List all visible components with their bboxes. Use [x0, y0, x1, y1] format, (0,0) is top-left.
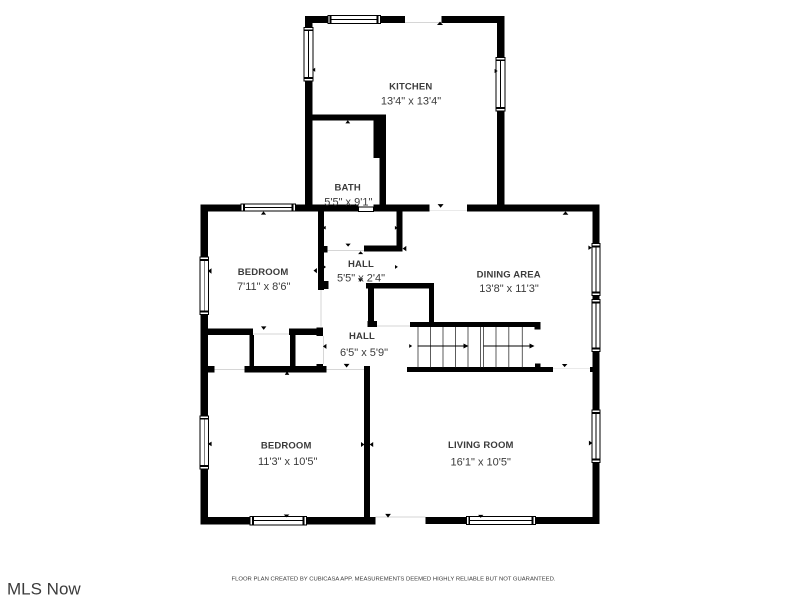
svg-text:13'8" x 11'3": 13'8" x 11'3": [479, 283, 539, 295]
svg-text:16'1" x 10'5": 16'1" x 10'5": [451, 457, 511, 469]
svg-text:BEDROOM: BEDROOM: [261, 440, 312, 451]
svg-text:11'3" x 10'5": 11'3" x 10'5": [258, 456, 318, 468]
svg-text:13'4" x 13'4": 13'4" x 13'4": [381, 96, 441, 108]
svg-text:LIVING ROOM: LIVING ROOM: [448, 440, 514, 451]
svg-text:HALL: HALL: [348, 259, 374, 270]
svg-text:6'5" x 5'9": 6'5" x 5'9": [340, 347, 388, 359]
svg-text:BEDROOM: BEDROOM: [238, 267, 289, 278]
svg-text:MLS Now: MLS Now: [7, 579, 81, 598]
svg-text:HALL: HALL: [349, 331, 375, 342]
svg-text:5'5" x 2'4": 5'5" x 2'4": [337, 272, 385, 284]
svg-text:DINING AREA: DINING AREA: [477, 269, 541, 280]
svg-text:KITCHEN: KITCHEN: [389, 82, 432, 93]
svg-text:BATH: BATH: [335, 182, 361, 193]
svg-text:FLOOR PLAN CREATED BY CUBICASA: FLOOR PLAN CREATED BY CUBICASA APP. MEAS…: [232, 576, 556, 582]
svg-text:5'5" x 9'1": 5'5" x 9'1": [324, 196, 372, 208]
svg-text:7'11" x 8'6": 7'11" x 8'6": [237, 281, 290, 293]
